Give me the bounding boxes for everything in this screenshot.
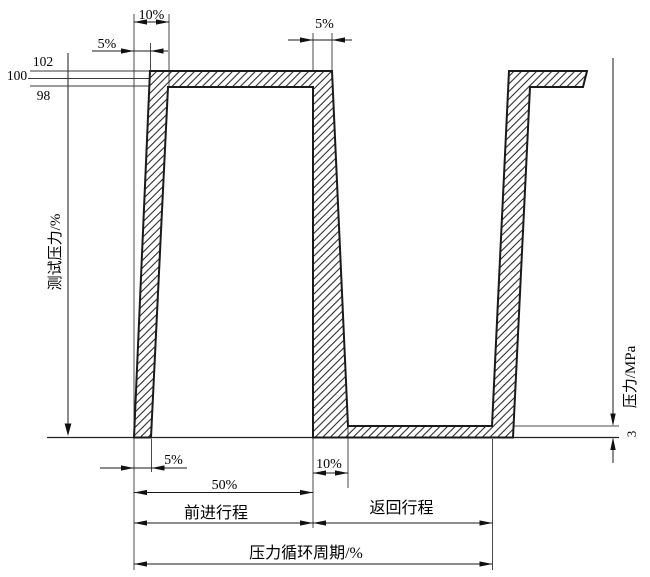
dim-bottom-fall: 10% — [313, 457, 348, 476]
dim-label-top-right-5pct: 5% — [315, 17, 334, 32]
right-arrow-icon — [480, 520, 493, 525]
tick-100: 100 — [7, 68, 28, 83]
left-axis-label: 测试压力/% — [47, 214, 64, 291]
tolerance-band — [134, 71, 587, 438]
right-axis-label: 压力/MPa — [622, 345, 639, 408]
dim-label-top-left-5pct: 5% — [98, 37, 117, 52]
pressure-cycle-tolerance-diagram: 10% 5% 5% 102 100 98 测试压力/% 压力/MPa 3 5% … — [0, 0, 650, 577]
forward-stroke-label: 前进行程 — [184, 504, 248, 522]
right-arrow-icon — [300, 520, 313, 525]
dim-top-rise-start: 5% — [92, 37, 168, 54]
dim-half-cycle: 50% — [134, 478, 313, 495]
right-axis-tick-3: 3 — [624, 431, 639, 438]
dim-label-bottom-10pct: 10% — [316, 457, 342, 472]
left-axis — [28, 53, 151, 436]
left-arrow-icon — [134, 490, 147, 495]
dim-label-bottom-5pct: 5% — [164, 453, 183, 468]
dim-bottom-start: 5% — [100, 453, 187, 471]
extension-lines — [134, 14, 619, 570]
up-arrow-icon — [610, 438, 615, 451]
down-arrow-icon — [610, 414, 615, 427]
diagram-canvas: 10% 5% 5% 102 100 98 测试压力/% 压力/MPa 3 5% … — [0, 0, 650, 577]
right-arrow-icon — [300, 37, 313, 42]
left-arrow-icon — [134, 520, 147, 525]
cycle-period-label: 压力循环周期/% — [249, 544, 363, 562]
dim-cycle-period: 压力循环周期/% — [134, 544, 493, 567]
right-arrow-icon — [480, 561, 493, 566]
right-arrow-icon — [121, 48, 134, 53]
right-arrow-icon — [121, 465, 134, 470]
dim-label-top-10pct: 10% — [139, 8, 165, 23]
left-arrow-icon — [313, 520, 326, 525]
tick-102: 102 — [33, 54, 53, 69]
return-stroke-label: 返回行程 — [369, 499, 433, 517]
left-arrow-icon — [332, 37, 345, 42]
left-arrow-icon — [152, 465, 165, 470]
dim-top-rise-total: 10% — [134, 8, 169, 25]
tick-98: 98 — [37, 88, 51, 103]
right-arrow-icon — [300, 490, 313, 495]
left-arrow-icon — [134, 561, 147, 566]
left-arrow-icon — [151, 48, 164, 53]
dim-top-fall: 5% — [288, 17, 352, 43]
down-arrow-icon — [65, 424, 72, 437]
right-axis — [610, 58, 615, 463]
dim-label-50pct: 50% — [212, 478, 238, 493]
